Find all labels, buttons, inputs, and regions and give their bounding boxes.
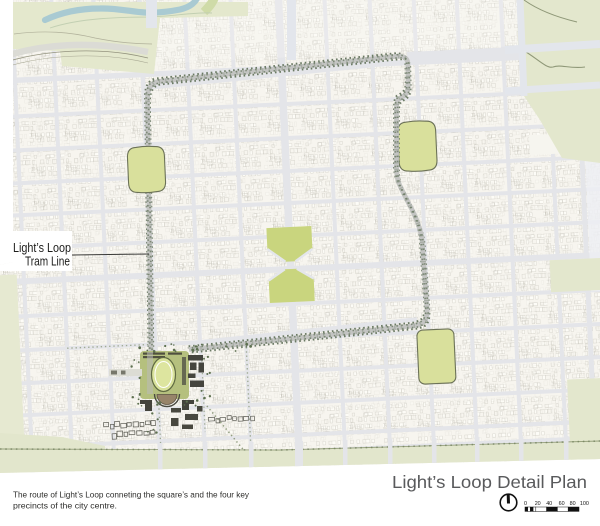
svg-text:80: 80 — [570, 501, 576, 507]
svg-text:0: 0 — [524, 501, 527, 507]
svg-text:The route of Light’s Loop conn: The route of Light’s Loop conneting the … — [13, 490, 250, 500]
svg-text:Tram Line: Tram Line — [25, 254, 70, 269]
svg-text:Light’s Loop Detail Plan: Light’s Loop Detail Plan — [392, 472, 587, 492]
svg-text:60: 60 — [559, 501, 565, 507]
svg-text:40: 40 — [546, 501, 552, 507]
svg-text:precincts of the city centre.: precincts of the city centre. — [13, 501, 117, 511]
svg-text:20: 20 — [535, 501, 541, 507]
svg-text:100: 100 — [580, 501, 589, 507]
